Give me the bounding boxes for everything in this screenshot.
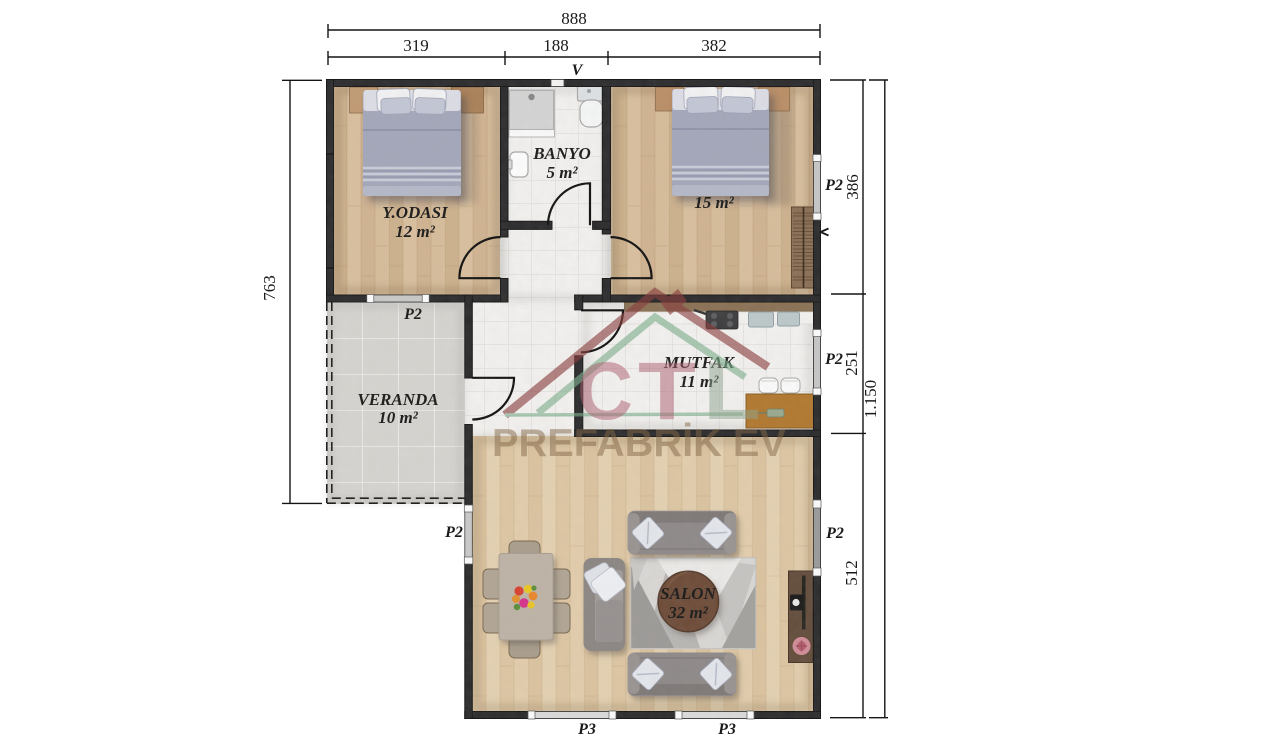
svg-text:319: 319 — [403, 36, 429, 55]
svg-text:512: 512 — [842, 560, 861, 586]
svg-text:888: 888 — [561, 9, 587, 28]
svg-text:P3: P3 — [577, 721, 596, 738]
svg-text:P3: P3 — [717, 721, 736, 738]
svg-text:PREFABRİK EV: PREFABRİK EV — [492, 422, 786, 465]
svg-text:P2: P2 — [444, 524, 463, 541]
svg-text:1.150: 1.150 — [861, 380, 880, 418]
svg-text:P2: P2 — [824, 351, 843, 368]
svg-text:188: 188 — [543, 36, 569, 55]
svg-text:V: V — [572, 62, 584, 79]
svg-text:P2: P2 — [825, 525, 844, 542]
svg-text:251: 251 — [842, 350, 861, 376]
svg-text:382: 382 — [701, 36, 727, 55]
svg-text:P2: P2 — [824, 177, 843, 194]
svg-text:386: 386 — [843, 174, 862, 200]
svg-text:763: 763 — [260, 275, 279, 301]
